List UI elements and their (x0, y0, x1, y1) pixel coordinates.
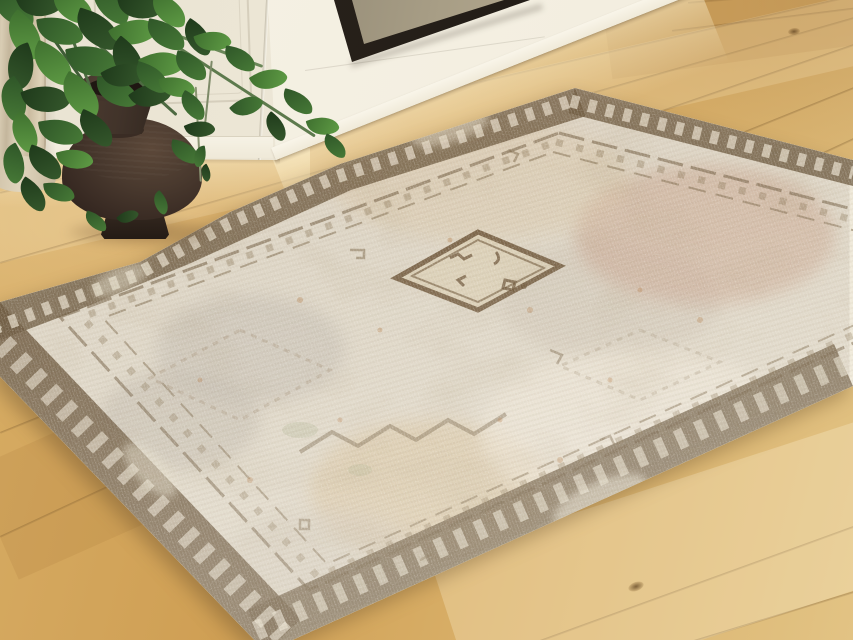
room-photo (0, 0, 853, 640)
